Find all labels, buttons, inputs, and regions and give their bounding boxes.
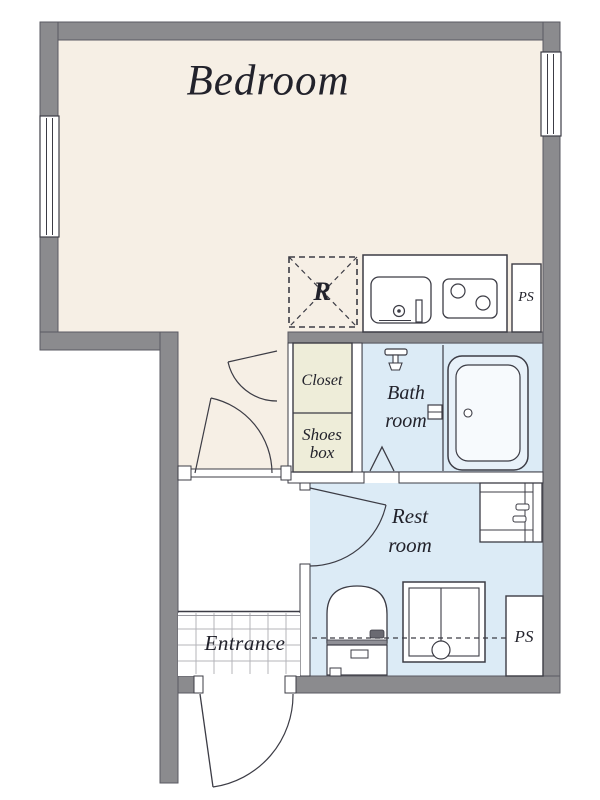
bathtub-icon: [428, 345, 528, 471]
washing-machine-pan-icon: [403, 582, 485, 662]
kitchen-sink-icon: [371, 277, 431, 323]
pipe-space-top-box: [512, 264, 541, 332]
washbasin-vanity-icon: [480, 483, 542, 542]
window-left: [40, 116, 59, 237]
pipe-space-bottom-box: [506, 596, 543, 676]
floor-plan-drawing: [0, 0, 600, 800]
closet-box: [293, 343, 352, 472]
entrance-door: [194, 674, 296, 787]
entrance-tile-floor: [178, 612, 300, 677]
window-right: [541, 52, 561, 136]
stove-icon: [443, 279, 497, 318]
floor-plan: Bedroom R PS Closet Shoes box Bath room …: [0, 0, 600, 800]
